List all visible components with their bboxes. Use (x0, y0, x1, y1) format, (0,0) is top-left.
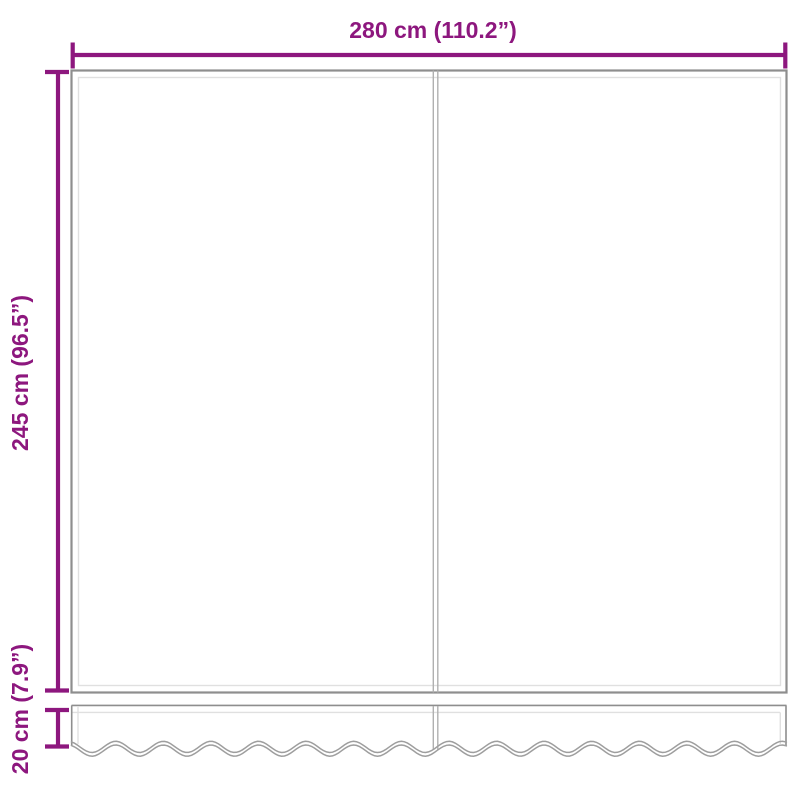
fabric-panel-outline (72, 71, 787, 693)
product-dimension-diagram: 280 cm (110.2”) 245 cm (96.5”) 20 cm (7.… (0, 0, 800, 800)
valance-strip (72, 705, 787, 756)
width-dimension-label: 280 cm (110.2”) (349, 17, 517, 43)
fabric-panel (72, 71, 787, 693)
valance-dimension-label: 20 cm (7.9”) (7, 644, 33, 774)
height-dimension: 245 cm (96.5”) (7, 71, 69, 692)
height-dimension-label: 245 cm (96.5”) (7, 295, 33, 451)
awning-diagram-svg: 280 cm (110.2”) 245 cm (96.5”) 20 cm (7.… (0, 0, 800, 800)
fabric-panel-inner-seam (79, 78, 781, 686)
valance-wave-outer (72, 745, 787, 756)
width-dimension: 280 cm (110.2”) (72, 17, 786, 69)
